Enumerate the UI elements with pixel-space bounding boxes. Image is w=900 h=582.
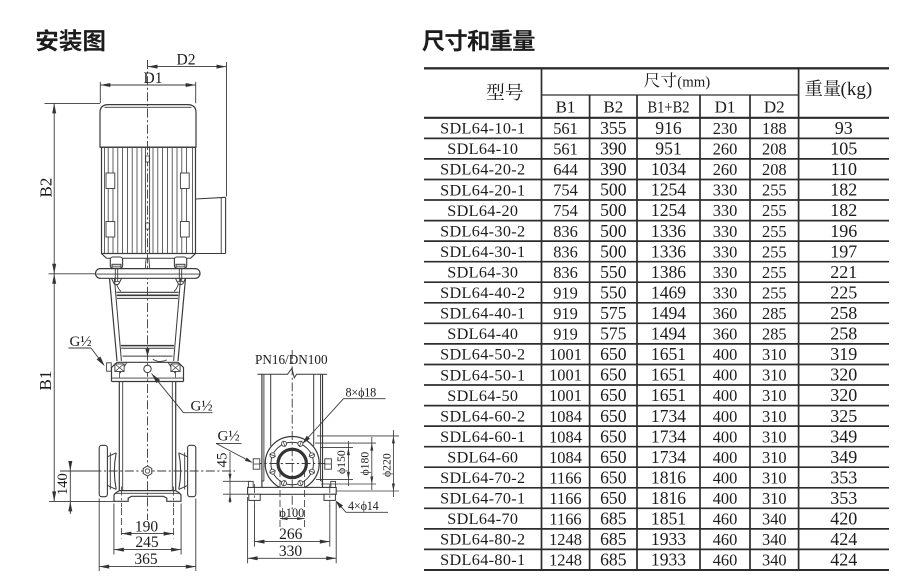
svg-text:225: 225 xyxy=(830,282,857,302)
svg-text:340: 340 xyxy=(762,551,787,570)
svg-text:SDL64-70-1: SDL64-70-1 xyxy=(440,490,525,508)
svg-text:ϕ150: ϕ150 xyxy=(335,450,348,474)
svg-text:105: 105 xyxy=(830,139,857,159)
svg-text:1001: 1001 xyxy=(549,366,582,385)
svg-text:SDL64-80-1: SDL64-80-1 xyxy=(440,551,525,569)
svg-text:360: 360 xyxy=(713,304,738,323)
svg-text:400: 400 xyxy=(713,407,738,426)
svg-text:197: 197 xyxy=(830,241,857,261)
svg-text:400: 400 xyxy=(713,489,738,508)
svg-text:255: 255 xyxy=(762,283,787,302)
svg-text:650: 650 xyxy=(600,365,627,385)
svg-text:SDL64-50-2: SDL64-50-2 xyxy=(440,346,525,364)
svg-text:424: 424 xyxy=(830,529,857,549)
svg-text:SDL64-40-2: SDL64-40-2 xyxy=(440,284,525,302)
svg-text:650: 650 xyxy=(600,467,627,487)
svg-text:1734: 1734 xyxy=(651,426,686,446)
svg-text:260: 260 xyxy=(713,160,738,179)
svg-text:919: 919 xyxy=(553,304,578,323)
svg-text:SDL64-60: SDL64-60 xyxy=(447,449,518,467)
svg-text:140: 140 xyxy=(55,473,71,495)
svg-text:330: 330 xyxy=(713,201,738,220)
svg-text:SDL64-40-1: SDL64-40-1 xyxy=(440,305,525,323)
svg-text:1851: 1851 xyxy=(651,509,686,529)
svg-text:1166: 1166 xyxy=(549,510,581,529)
svg-text:310: 310 xyxy=(762,366,787,385)
svg-text:310: 310 xyxy=(762,468,787,487)
svg-text:1734: 1734 xyxy=(651,447,686,467)
svg-text:255: 255 xyxy=(762,222,787,241)
svg-text:ϕ180: ϕ180 xyxy=(359,452,372,476)
svg-text:266: 266 xyxy=(279,526,303,543)
svg-text:320: 320 xyxy=(830,385,857,405)
svg-text:190: 190 xyxy=(135,518,159,535)
svg-text:320: 320 xyxy=(830,365,857,385)
svg-text:460: 460 xyxy=(713,510,738,529)
svg-text:754: 754 xyxy=(553,181,578,200)
svg-text:285: 285 xyxy=(762,325,787,344)
svg-text:1248: 1248 xyxy=(549,551,582,570)
svg-text:500: 500 xyxy=(600,221,627,241)
svg-text:221: 221 xyxy=(830,262,857,282)
svg-text:1084: 1084 xyxy=(549,407,582,426)
svg-text:561: 561 xyxy=(553,140,578,159)
svg-text:349: 349 xyxy=(830,426,857,446)
svg-text:B1+B2: B1+B2 xyxy=(648,98,690,117)
svg-text:355: 355 xyxy=(600,118,627,138)
svg-text:310: 310 xyxy=(762,407,787,426)
svg-text:424: 424 xyxy=(830,550,857,570)
svg-text:1254: 1254 xyxy=(651,200,686,220)
svg-text:1651: 1651 xyxy=(651,385,686,405)
svg-text:916: 916 xyxy=(655,118,682,138)
svg-text:500: 500 xyxy=(600,200,627,220)
svg-text:390: 390 xyxy=(600,139,627,159)
svg-text:1386: 1386 xyxy=(651,262,686,282)
svg-text:SDL64-50-1: SDL64-50-1 xyxy=(440,366,525,384)
svg-text:45: 45 xyxy=(214,453,230,468)
svg-text:644: 644 xyxy=(553,160,578,179)
svg-text:255: 255 xyxy=(762,242,787,261)
svg-text:196: 196 xyxy=(830,221,857,241)
svg-text:310: 310 xyxy=(762,448,787,467)
svg-text:400: 400 xyxy=(713,448,738,467)
svg-text:93: 93 xyxy=(835,118,853,138)
svg-text:255: 255 xyxy=(762,181,787,200)
svg-text:ϕ100: ϕ100 xyxy=(279,506,304,520)
svg-text:650: 650 xyxy=(600,426,627,446)
svg-text:400: 400 xyxy=(713,345,738,364)
svg-text:1336: 1336 xyxy=(651,241,686,261)
svg-text:1001: 1001 xyxy=(549,345,582,364)
svg-text:310: 310 xyxy=(762,427,787,446)
svg-text:SDL64-30-2: SDL64-30-2 xyxy=(440,222,525,240)
svg-text:349: 349 xyxy=(830,447,857,467)
svg-text:360: 360 xyxy=(713,325,738,344)
svg-text:182: 182 xyxy=(830,180,857,200)
svg-text:550: 550 xyxy=(600,262,627,282)
svg-text:SDL64-20-2: SDL64-20-2 xyxy=(440,161,525,179)
svg-text:340: 340 xyxy=(762,530,787,549)
svg-text:208: 208 xyxy=(762,160,787,179)
svg-text:325: 325 xyxy=(830,406,857,426)
svg-text:255: 255 xyxy=(762,201,787,220)
svg-text:SDL64-70: SDL64-70 xyxy=(447,510,518,528)
svg-text:D2: D2 xyxy=(764,98,785,117)
svg-text:SDL64-20: SDL64-20 xyxy=(447,202,518,220)
svg-text:400: 400 xyxy=(713,468,738,487)
svg-text:(mm): (mm) xyxy=(677,74,710,90)
svg-text:1933: 1933 xyxy=(651,529,686,549)
svg-text:258: 258 xyxy=(830,303,857,323)
svg-text:1254: 1254 xyxy=(651,180,686,200)
svg-text:245: 245 xyxy=(135,534,159,551)
svg-text:420: 420 xyxy=(830,509,857,529)
svg-text:D2: D2 xyxy=(177,52,196,69)
svg-text:650: 650 xyxy=(600,385,627,405)
svg-text:258: 258 xyxy=(830,324,857,344)
svg-text:754: 754 xyxy=(553,201,578,220)
svg-text:1248: 1248 xyxy=(549,530,582,549)
svg-text:110: 110 xyxy=(831,159,857,179)
svg-text:951: 951 xyxy=(655,139,681,159)
svg-text:575: 575 xyxy=(600,303,627,323)
svg-text:650: 650 xyxy=(600,488,627,508)
svg-text:SDL64-40: SDL64-40 xyxy=(447,325,518,343)
svg-text:575: 575 xyxy=(600,324,627,344)
svg-text:B1: B1 xyxy=(36,371,55,391)
svg-text:PN16/DN100: PN16/DN100 xyxy=(255,352,328,367)
svg-text:500: 500 xyxy=(600,180,627,200)
svg-text:650: 650 xyxy=(600,447,627,467)
svg-text:685: 685 xyxy=(600,509,627,529)
svg-text:188: 188 xyxy=(762,119,787,138)
svg-text:1816: 1816 xyxy=(651,467,686,487)
svg-text:1469: 1469 xyxy=(651,282,686,302)
svg-text:919: 919 xyxy=(553,325,578,344)
svg-text:685: 685 xyxy=(600,550,627,570)
svg-text:330: 330 xyxy=(713,263,738,282)
svg-text:330: 330 xyxy=(713,181,738,200)
svg-text:G½: G½ xyxy=(191,398,213,414)
svg-text:8×ϕ18: 8×ϕ18 xyxy=(346,385,377,399)
svg-text:650: 650 xyxy=(600,406,627,426)
svg-text:1166: 1166 xyxy=(549,468,581,487)
svg-text:400: 400 xyxy=(713,427,738,446)
svg-text:550: 550 xyxy=(600,282,627,302)
svg-text:836: 836 xyxy=(553,242,578,261)
svg-text:1734: 1734 xyxy=(651,406,686,426)
svg-text:SDL64-60-1: SDL64-60-1 xyxy=(440,428,525,446)
svg-text:460: 460 xyxy=(713,551,738,570)
svg-text:SDL64-60-2: SDL64-60-2 xyxy=(440,407,525,425)
svg-text:260: 260 xyxy=(713,140,738,159)
svg-text:1933: 1933 xyxy=(651,550,686,570)
svg-text:390: 390 xyxy=(600,159,627,179)
svg-text:285: 285 xyxy=(762,304,787,323)
svg-text:400: 400 xyxy=(713,386,738,405)
svg-text:1651: 1651 xyxy=(651,365,686,385)
svg-text:182: 182 xyxy=(830,200,857,220)
svg-text:SDL64-50: SDL64-50 xyxy=(447,387,518,405)
svg-text:230: 230 xyxy=(713,119,738,138)
svg-text:500: 500 xyxy=(600,241,627,261)
svg-text:330: 330 xyxy=(713,283,738,302)
svg-text:319: 319 xyxy=(830,344,857,364)
svg-text:650: 650 xyxy=(600,344,627,364)
svg-text:1816: 1816 xyxy=(651,488,686,508)
svg-text:1494: 1494 xyxy=(651,324,686,344)
svg-text:G½: G½ xyxy=(218,429,240,445)
svg-text:SDL64-30-1: SDL64-30-1 xyxy=(440,243,525,261)
svg-text:1651: 1651 xyxy=(651,344,686,364)
svg-text:310: 310 xyxy=(762,345,787,364)
svg-text:SDL64-70-2: SDL64-70-2 xyxy=(440,469,525,487)
svg-text:330: 330 xyxy=(279,543,303,560)
svg-text:919: 919 xyxy=(553,283,578,302)
svg-text:SDL64-10-1: SDL64-10-1 xyxy=(440,120,525,138)
svg-text:1494: 1494 xyxy=(651,303,686,323)
svg-text:255: 255 xyxy=(762,263,787,282)
svg-text:G½: G½ xyxy=(70,334,92,350)
svg-text:353: 353 xyxy=(830,488,857,508)
svg-text:836: 836 xyxy=(553,222,578,241)
svg-text:460: 460 xyxy=(713,530,738,549)
svg-text:B1: B1 xyxy=(556,98,576,117)
svg-text:685: 685 xyxy=(600,529,627,549)
svg-text:D1: D1 xyxy=(715,98,736,117)
svg-text:SDL64-80-2: SDL64-80-2 xyxy=(440,531,525,549)
svg-text:400: 400 xyxy=(713,366,738,385)
svg-text:330: 330 xyxy=(713,222,738,241)
svg-text:1084: 1084 xyxy=(549,427,582,446)
svg-text:1034: 1034 xyxy=(651,159,686,179)
svg-text:1166: 1166 xyxy=(549,489,581,508)
svg-text:(kg): (kg) xyxy=(841,79,873,100)
svg-text:D1: D1 xyxy=(144,70,163,87)
svg-text:340: 340 xyxy=(762,510,787,529)
svg-text:330: 330 xyxy=(713,242,738,261)
svg-text:836: 836 xyxy=(553,263,578,282)
svg-text:561: 561 xyxy=(553,119,578,138)
svg-text:SDL64-20-1: SDL64-20-1 xyxy=(440,181,525,199)
svg-text:353: 353 xyxy=(830,467,857,487)
svg-text:1336: 1336 xyxy=(651,221,686,241)
svg-text:SDL64-10: SDL64-10 xyxy=(447,140,518,158)
svg-text:B2: B2 xyxy=(603,98,623,117)
svg-text:208: 208 xyxy=(762,140,787,159)
svg-text:SDL64-30: SDL64-30 xyxy=(447,264,518,282)
svg-text:310: 310 xyxy=(762,489,787,508)
svg-text:4×ϕ14: 4×ϕ14 xyxy=(348,499,379,513)
svg-text:310: 310 xyxy=(762,386,787,405)
svg-text:1084: 1084 xyxy=(549,448,582,467)
svg-text:ϕ220: ϕ220 xyxy=(381,453,394,477)
svg-text:365: 365 xyxy=(134,551,158,568)
svg-text:1001: 1001 xyxy=(549,386,582,405)
svg-text:B2: B2 xyxy=(37,178,56,198)
